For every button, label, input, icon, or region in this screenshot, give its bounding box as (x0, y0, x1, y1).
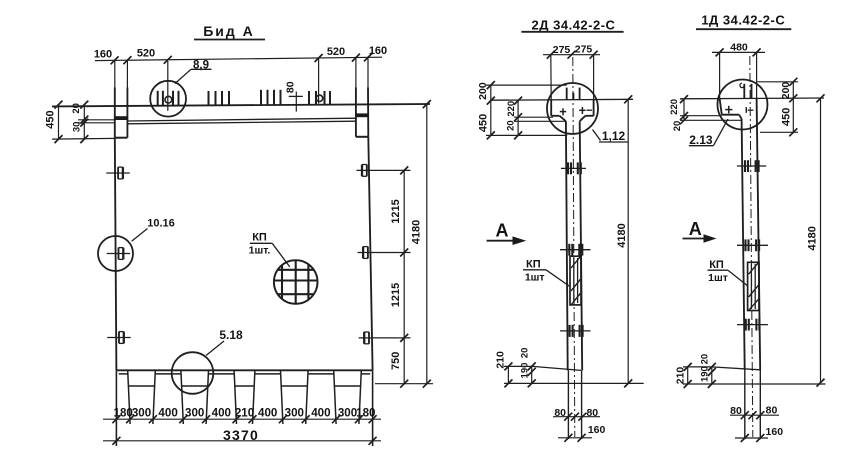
svg-text:4180: 4180 (807, 226, 819, 250)
svg-text:210: 210 (674, 367, 686, 385)
svg-text:400: 400 (311, 407, 330, 420)
svg-text:300: 300 (285, 407, 304, 420)
svg-text:20: 20 (672, 121, 683, 132)
svg-text:80: 80 (284, 81, 296, 93)
svg-text:5.18: 5.18 (219, 328, 243, 342)
svg-text:А: А (496, 221, 509, 241)
svg-text:20: 20 (506, 120, 517, 131)
svg-text:480: 480 (730, 42, 748, 54)
svg-text:180: 180 (356, 407, 375, 420)
svg-text:275: 275 (575, 44, 593, 56)
svg-text:1Д 34.42-2-С: 1Д 34.42-2-С (701, 13, 785, 28)
svg-text:220: 220 (669, 99, 680, 115)
svg-text:400: 400 (258, 407, 277, 420)
svg-text:450: 450 (44, 110, 56, 128)
svg-text:220: 220 (506, 101, 517, 117)
svg-text:160: 160 (94, 49, 112, 61)
svg-text:80: 80 (766, 405, 778, 417)
svg-text:4180: 4180 (410, 220, 422, 244)
svg-text:200: 200 (477, 82, 489, 100)
svg-text:300: 300 (132, 407, 151, 420)
svg-text:180: 180 (114, 407, 133, 420)
svg-text:80: 80 (554, 407, 566, 419)
svg-text:4180: 4180 (616, 223, 628, 247)
svg-text:А: А (689, 219, 702, 239)
svg-text:450: 450 (478, 114, 490, 132)
svg-text:1,12: 1,12 (602, 129, 626, 143)
svg-text:520: 520 (327, 46, 345, 58)
svg-text:160: 160 (588, 424, 606, 436)
svg-text:80: 80 (730, 405, 742, 417)
svg-text:160: 160 (369, 45, 387, 57)
svg-text:160: 160 (766, 426, 784, 438)
svg-text:10.16: 10.16 (147, 218, 175, 230)
svg-text:КП: КП (709, 259, 724, 271)
svg-text:300: 300 (185, 407, 204, 420)
svg-text:750: 750 (390, 352, 402, 370)
svg-text:400: 400 (212, 407, 231, 420)
svg-text:190: 190 (519, 363, 530, 379)
svg-text:1шт: 1шт (708, 272, 728, 284)
svg-text:1215: 1215 (390, 199, 402, 223)
svg-text:20: 20 (71, 103, 82, 114)
svg-text:2Д 34.42-2-С: 2Д 34.42-2-С (532, 18, 616, 33)
svg-text:400: 400 (158, 407, 177, 420)
svg-text:20: 20 (519, 348, 530, 359)
svg-text:80: 80 (586, 407, 598, 419)
svg-text:Бид А: Бид А (203, 23, 255, 39)
svg-text:1шт: 1шт (525, 272, 545, 284)
svg-text:450: 450 (781, 108, 793, 126)
svg-text:20: 20 (699, 354, 710, 365)
svg-text:275: 275 (553, 44, 571, 56)
svg-text:3370: 3370 (223, 427, 259, 443)
svg-text:1шт.: 1шт. (249, 245, 271, 257)
svg-text:200: 200 (780, 82, 792, 100)
svg-text:190: 190 (699, 366, 710, 382)
svg-text:КП: КП (252, 232, 267, 244)
svg-text:КП: КП (526, 258, 541, 270)
svg-text:520: 520 (137, 48, 155, 60)
svg-text:30: 30 (72, 122, 83, 133)
svg-text:210: 210 (235, 407, 254, 420)
svg-text:300: 300 (338, 407, 357, 420)
svg-text:2.13: 2.13 (689, 133, 713, 147)
svg-text:1215: 1215 (390, 283, 402, 307)
